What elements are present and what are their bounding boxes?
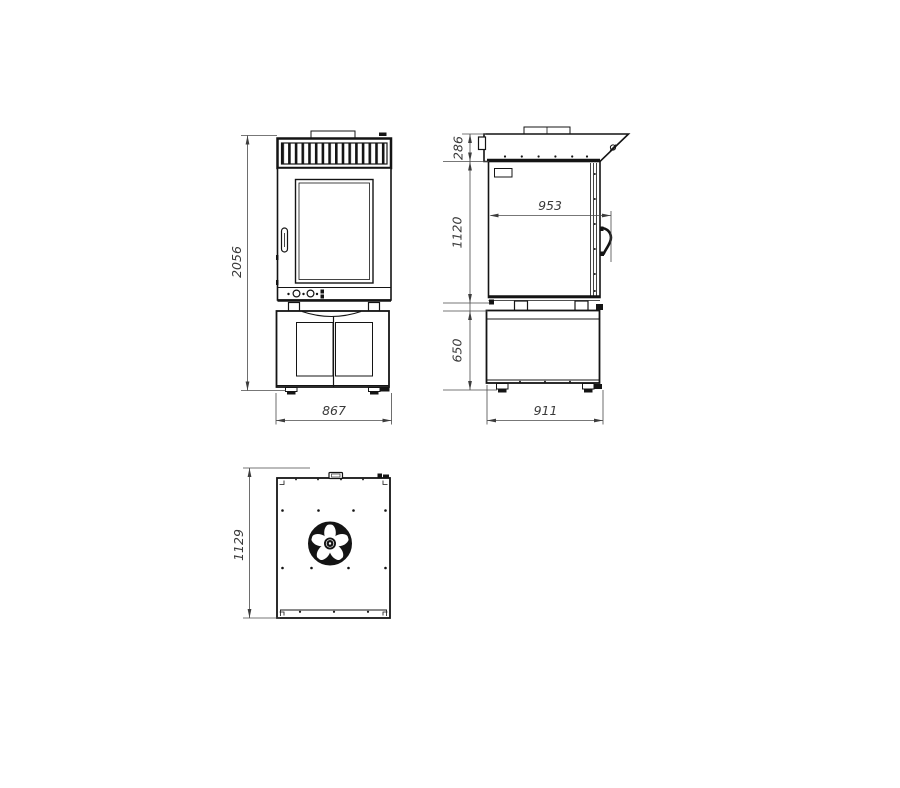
top-rear-fitting (378, 474, 383, 479)
side-oven-foot-rear (575, 301, 588, 311)
front-oven-body (278, 168, 392, 300)
side-feet (497, 384, 603, 393)
side-vent-hood (484, 134, 629, 162)
dim-label-911: 911 (534, 403, 558, 418)
technical-drawing: 2056 867 (0, 0, 900, 788)
oven-foot-right (369, 303, 380, 312)
front-hinge-tick-upper (276, 255, 279, 260)
front-top-fitting (379, 133, 387, 137)
top-view (277, 473, 390, 619)
control-knob-right (307, 290, 314, 297)
drawing-canvas: 2056 867 (0, 0, 900, 788)
dim-label-2056: 2056 (229, 246, 244, 278)
fan-icon (310, 523, 351, 564)
dim-label-1129: 1129 (231, 529, 246, 561)
front-vent-slats (282, 143, 388, 164)
side-stand-cabinet (487, 311, 600, 384)
side-view (479, 127, 629, 393)
dim-label-286: 286 (451, 136, 466, 160)
control-knob-left (293, 290, 300, 297)
front-feet (286, 388, 390, 395)
oven-foot-left (289, 303, 300, 312)
side-door-handle (600, 227, 611, 257)
side-oven-foot-front (515, 301, 528, 311)
dim-label-650: 650 (450, 339, 465, 363)
dim-label-867: 867 (322, 403, 346, 418)
front-door-handle (282, 228, 288, 252)
front-hinge-tick-lower (276, 280, 279, 285)
hood-left-bracket (479, 137, 486, 150)
front-view (276, 131, 391, 395)
side-oven-body (489, 162, 601, 298)
dim-label-1120: 1120 (450, 217, 465, 249)
dim-label-953: 953 (538, 198, 562, 213)
dimension-front-width: 867 (276, 393, 392, 425)
top-chimney (329, 473, 343, 479)
